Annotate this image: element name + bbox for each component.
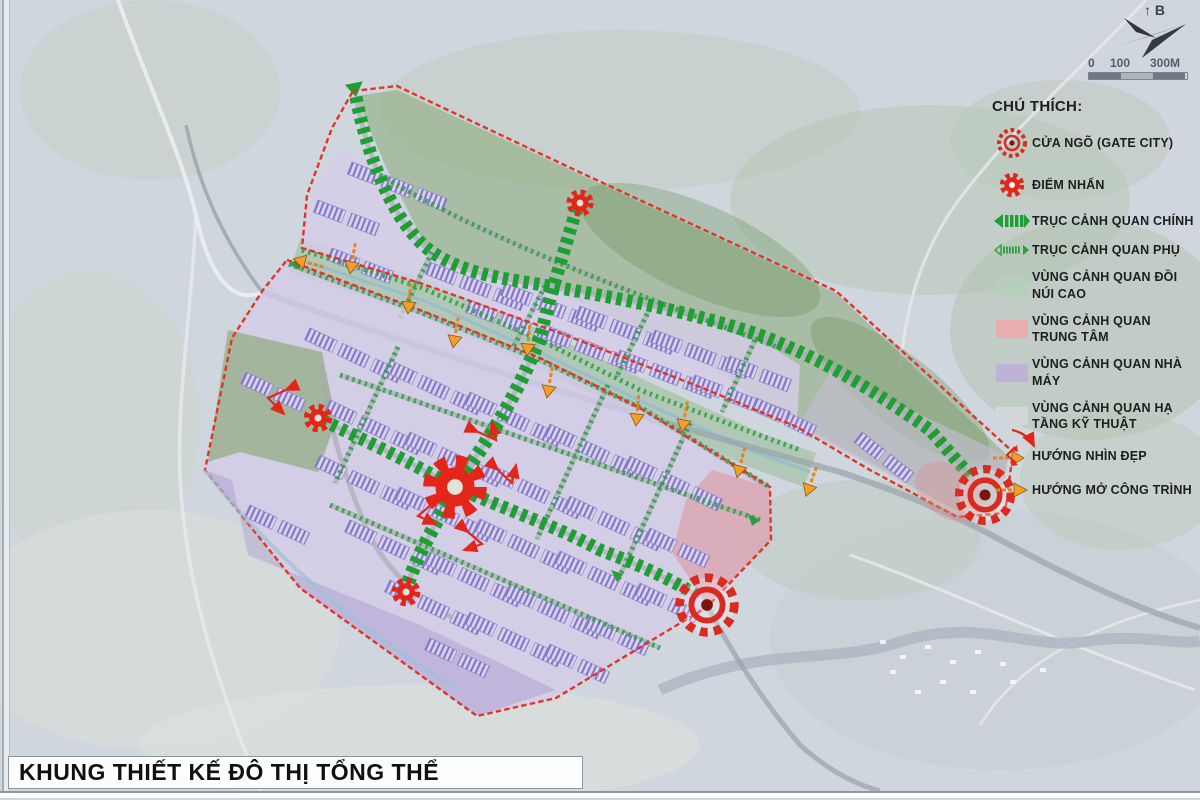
scale-tick: 100	[1110, 56, 1130, 70]
scale-bar: 0 100 300M	[1088, 56, 1188, 80]
compass: ↑ B	[1112, 2, 1198, 60]
scale-tick: 300M	[1150, 56, 1180, 70]
legend-item-gate-city: CỬA NGÕ (GATE CITY)	[992, 127, 1197, 159]
hill-zone-swatch	[992, 276, 1032, 296]
title-bar: KHUNG THIẾT KẾ ĐÔ THỊ TỔNG THỂ	[8, 756, 583, 789]
infrastructure-zone-swatch	[992, 406, 1032, 426]
legend-item-label: TRỤC CẢNH QUAN CHÍNH	[1032, 213, 1194, 229]
focal-point-icon	[992, 170, 1032, 200]
legend-item-label: VÙNG CẢNH QUAN NHÀ MÁY	[1032, 356, 1197, 389]
factory-zone-swatch	[992, 363, 1032, 383]
legend-item-view-direction: HƯỚNG NHÌN ĐẸP	[992, 443, 1197, 469]
legend-item-label: HƯỚNG MỞ CÔNG TRÌNH	[1032, 482, 1192, 498]
legend-item-label: HƯỚNG NHÌN ĐẸP	[1032, 448, 1147, 464]
legend-item-hill-zone: VÙNG CẢNH QUAN ĐỒI NÚI CAO	[992, 269, 1197, 302]
view-direction-icon	[992, 443, 1032, 469]
legend-item-label: VÙNG CẢNH QUAN ĐỒI NÚI CAO	[1032, 269, 1197, 302]
legend-item-sub-axis: TRỤC CẢNH QUAN PHỤ	[992, 242, 1197, 258]
map-frame-bottom	[0, 791, 1200, 800]
gate-city-icon	[680, 578, 735, 633]
urban-design-framework-map: KHUNG THIẾT KẾ ĐÔ THỊ TỔNG THỂ ↑ B 0 100…	[0, 0, 1200, 800]
compass-rose-icon	[1112, 2, 1198, 60]
map-frame-left	[2, 0, 10, 791]
legend-header: CHÚ THÍCH:	[992, 98, 1197, 115]
legend-item-infrastructure-zone: VÙNG CẢNH QUAN HẠ TẦNG KỸ THUẬT	[992, 400, 1197, 433]
scale-tick: 0	[1088, 56, 1095, 70]
legend-item-focal-point: ĐIỂM NHẤN	[992, 170, 1197, 200]
legend-item-label: TRỤC CẢNH QUAN PHỤ	[1032, 242, 1180, 258]
sub-axis-icon	[992, 242, 1032, 258]
scale-bar-graphic	[1088, 72, 1188, 80]
legend-item-label: VÙNG CẢNH QUAN TRUNG TÂM	[1032, 313, 1197, 346]
legend-item-factory-zone: VÙNG CẢNH QUAN NHÀ MÁY	[992, 356, 1197, 389]
legend-item-label: ĐIỂM NHẤN	[1032, 177, 1105, 193]
legend-item-label: VÙNG CẢNH QUAN HẠ TẦNG KỸ THUẬT	[1032, 400, 1197, 433]
legend: CHÚ THÍCH: CỬA NGÕ (GATE CITY) ĐIỂM NHẤN	[992, 98, 1197, 511]
legend-item-label: CỬA NGÕ (GATE CITY)	[1032, 135, 1173, 151]
center-zone-swatch	[992, 319, 1032, 339]
opening-direction-icon	[992, 480, 1032, 500]
legend-item-main-axis: TRỤC CẢNH QUAN CHÍNH	[992, 211, 1197, 231]
legend-item-center-zone: VÙNG CẢNH QUAN TRUNG TÂM	[992, 313, 1197, 346]
gate-city-icon	[992, 127, 1032, 159]
legend-item-opening-direction: HƯỚNG MỞ CÔNG TRÌNH	[992, 480, 1197, 500]
page-title: KHUNG THIẾT KẾ ĐÔ THỊ TỔNG THỂ	[19, 759, 439, 786]
main-axis-icon	[992, 211, 1032, 231]
